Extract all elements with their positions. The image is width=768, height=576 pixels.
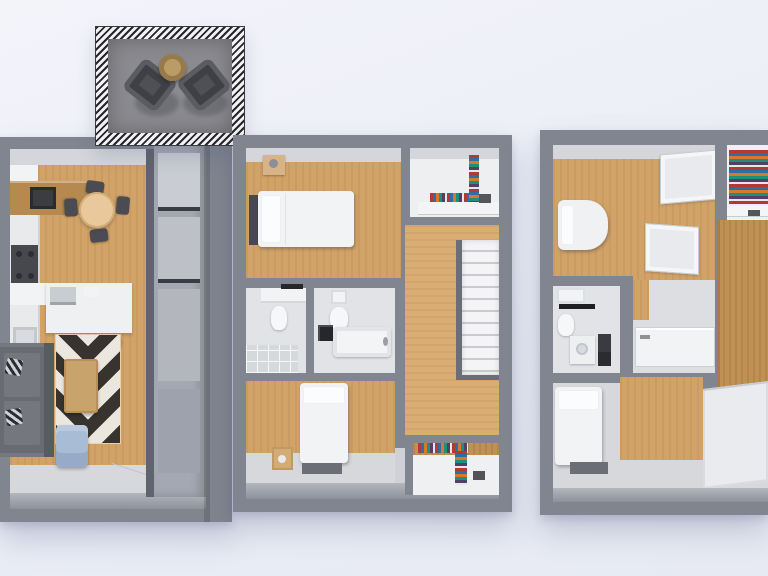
pantry-shelf-middle [158,217,200,283]
shower-handle [640,335,650,339]
dining-chair-left [64,198,78,217]
closet-top-shelf [418,202,499,214]
bed-pillow [261,195,281,243]
nightstand-lamp [269,159,278,168]
single-bed-level3-foot-mat [570,462,608,474]
tall-wood-door [717,220,768,390]
shower-tile-floor [246,345,298,373]
closet3-clothes-stack [729,150,768,204]
round-dining-table [79,192,115,228]
throw-pillow-1 [5,358,24,377]
single-bed-pillow [303,386,345,404]
closet-bottom-left-wall [405,435,413,495]
drawer-dresser [703,381,768,489]
coffee-table [64,359,98,413]
dark-shelf [598,334,611,366]
bed-rounded-pillow [561,205,574,245]
island-tray [84,287,98,297]
level-3-plan [540,130,768,515]
bathroom-left-toilet [271,306,287,330]
wall-bath3-right [620,280,633,383]
round-side-table [159,54,186,81]
single-bed-foot-mat [302,463,342,474]
closet-bottom-clothes-stack [455,451,467,485]
island-counter-extension [10,283,46,305]
range-hood [30,187,56,209]
top-wall-face [10,149,150,165]
island-appliance [50,287,76,305]
pantry-shelf-upper [158,153,200,211]
vanity-basin-bowl [576,343,588,355]
dining-chair-bottom [89,228,108,243]
floor-plan-render [0,0,768,576]
closet-top-box [479,194,491,203]
single-bed-level3-pillow [558,390,599,410]
shower-pan [635,327,715,367]
bathroom3-dark-counter [559,304,595,309]
blue-lounge-chair [56,425,88,467]
closet-bottom-box [473,471,485,480]
wardrobe-panel-lower [645,223,699,275]
bathroom-left-towel-bar [281,284,303,289]
closet3-box [748,210,760,216]
level-1-plan [0,137,232,522]
wall-bath-top [246,278,401,288]
throw-pillow-2 [5,408,23,426]
stair-railing-bottom [462,375,499,380]
wood-back-panel [620,377,703,460]
pantry-divider-wall [146,149,154,497]
level-2-plan [233,135,512,512]
bathroom-right-sink [331,290,347,304]
closet-top-clothes-stack [469,155,479,203]
pantry-shelf-lower [158,289,200,381]
duvet-fold [285,193,286,245]
shower-room-wood-strip [633,280,649,320]
wardrobe-panel-upper [660,150,717,205]
bathtub-faucet [383,337,388,346]
wall-between-baths [306,288,314,373]
bathroom-left-sink-counter [261,288,306,303]
wall-hallway-left [395,278,405,448]
crate-knob [278,455,286,463]
closet-top-bottom-wall [410,217,499,225]
wall-bedroom-back-top [246,373,401,381]
staircase [462,240,499,375]
level3-bottom-face [553,488,768,502]
right-wall-shade [204,137,210,522]
laundry-box [318,325,333,341]
pantry-opening [158,389,200,473]
balcony-deck [95,26,245,146]
closet-top-wall-face [410,148,499,159]
closet-bottom-top-wall [413,435,499,443]
stove-burner [16,251,22,257]
bed-headboard [249,195,258,245]
bathroom3-sink-top [557,288,585,303]
bathroom3-toilet [558,314,574,336]
dining-chair-right [116,196,131,215]
